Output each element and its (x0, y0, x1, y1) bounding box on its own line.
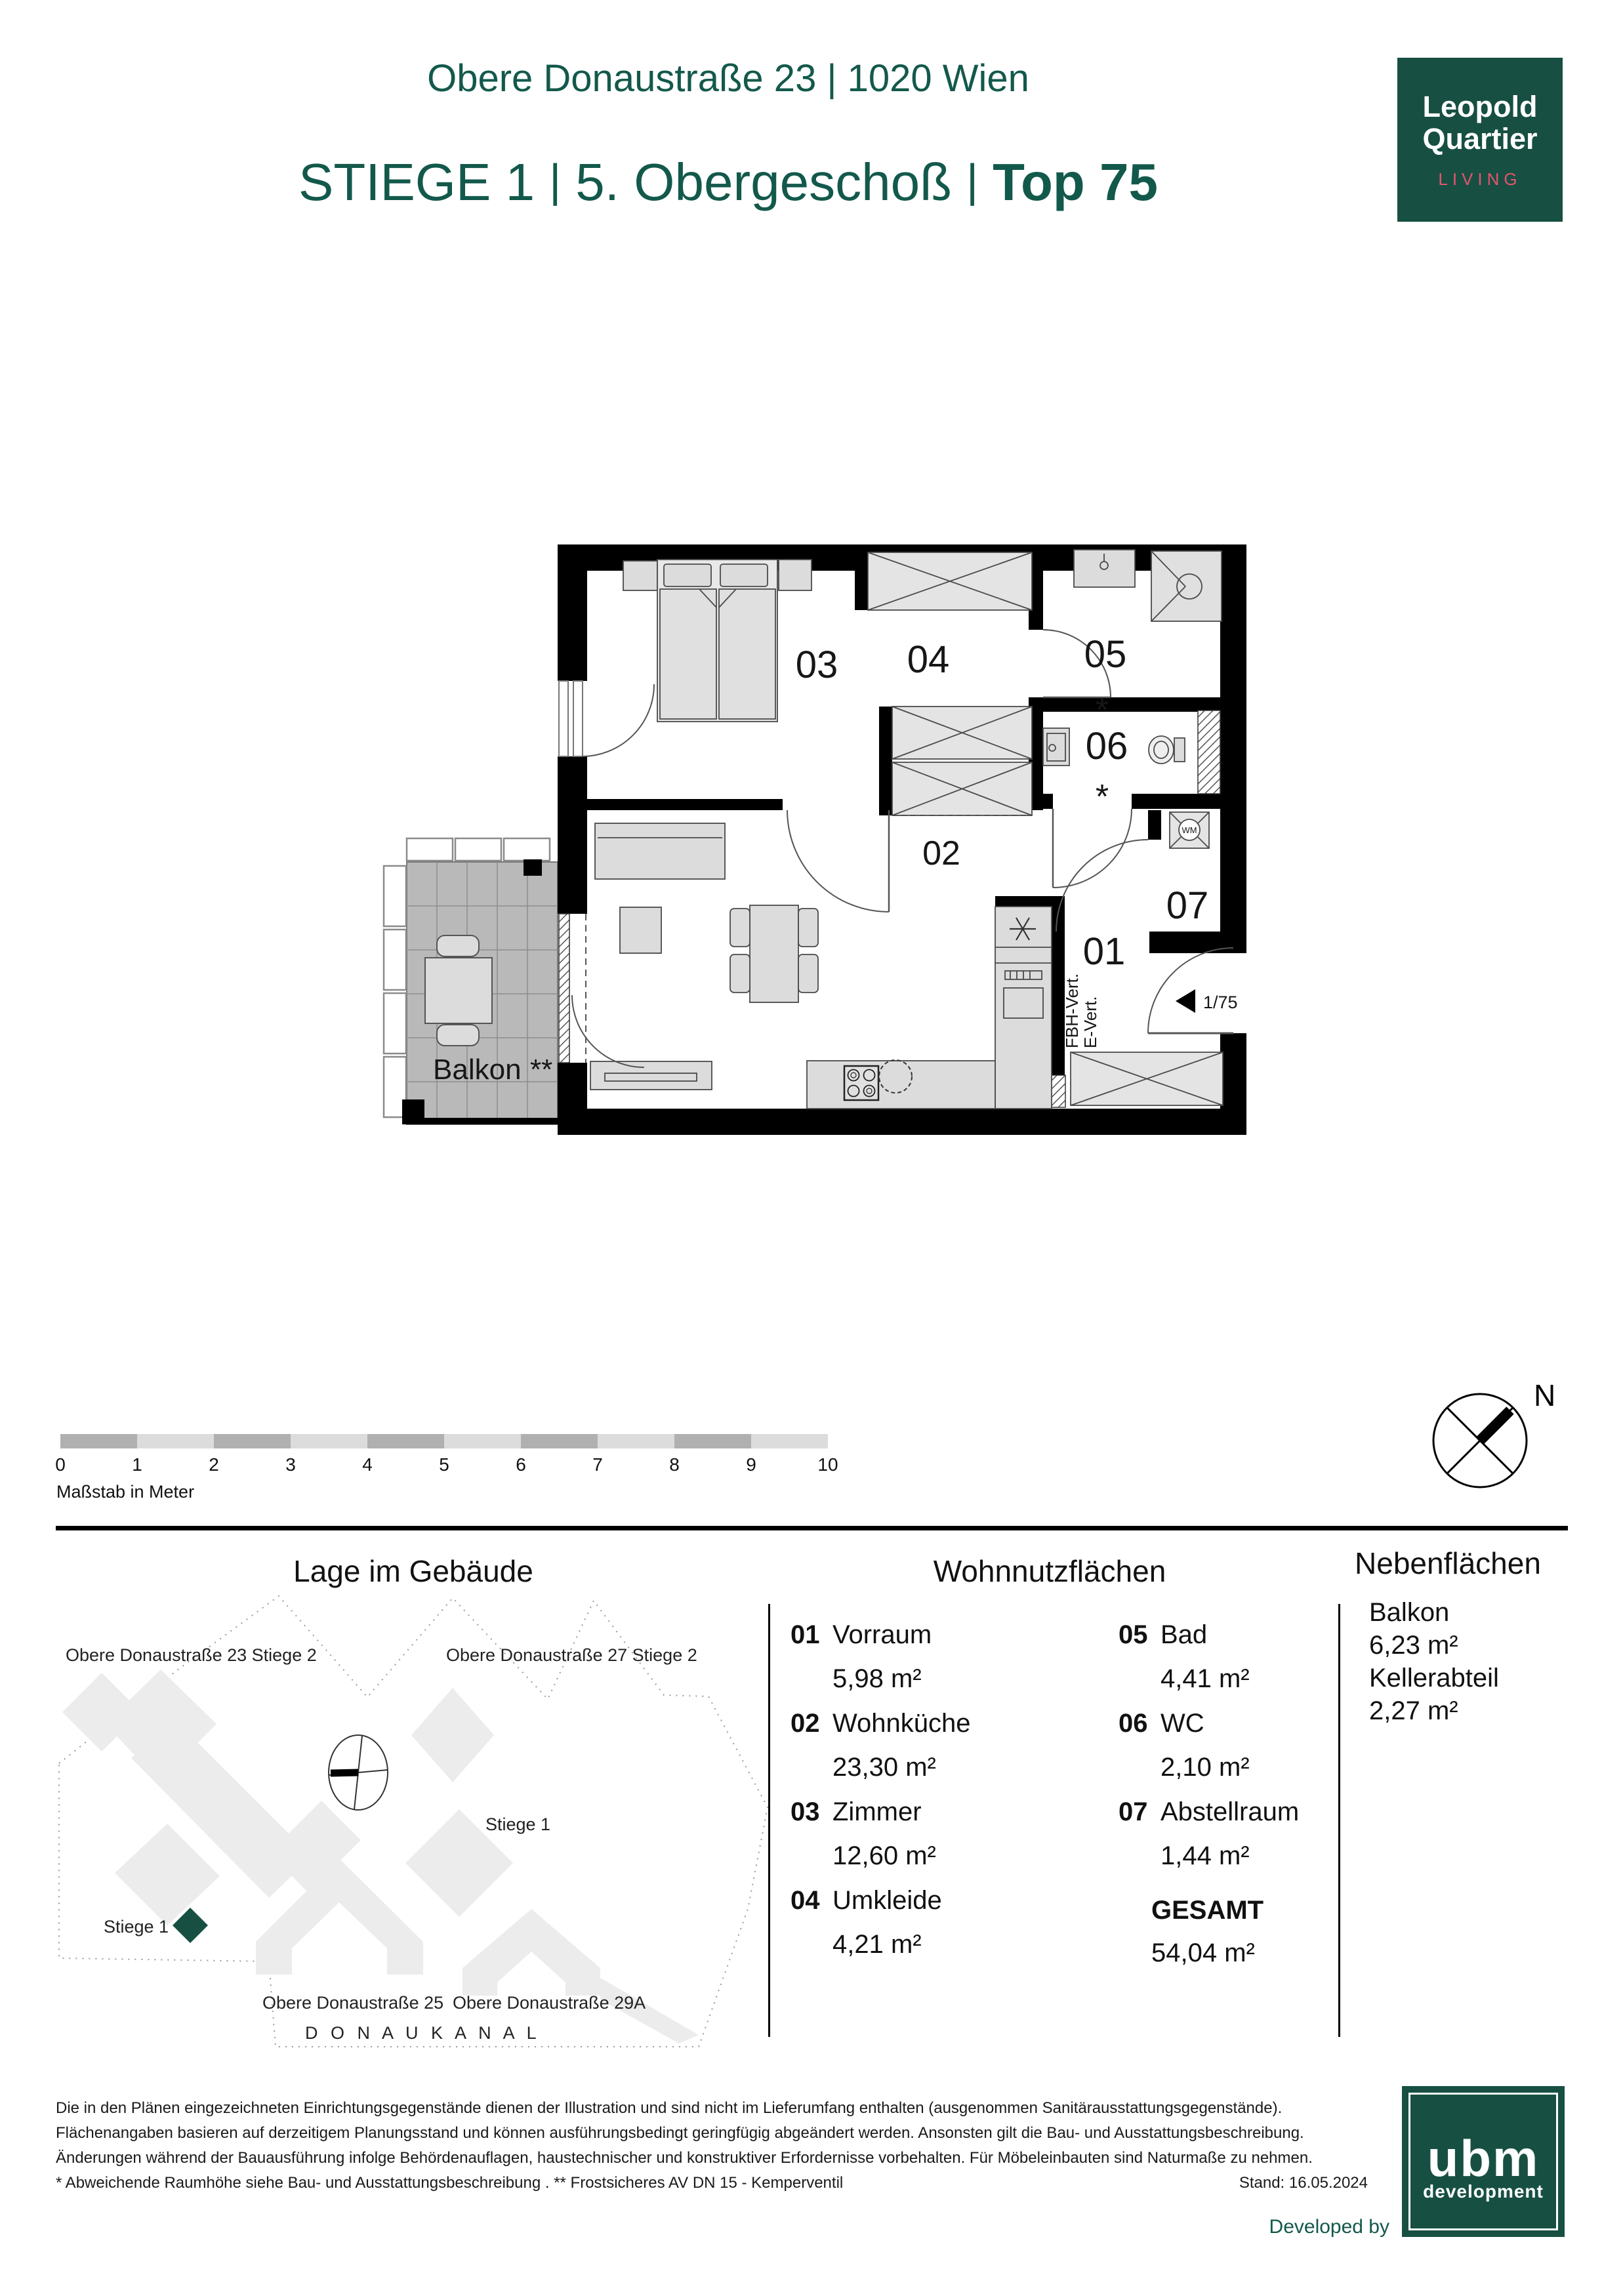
toilet-tank (1174, 738, 1185, 762)
balcony-table (425, 958, 492, 1023)
north-needle (1480, 1410, 1510, 1441)
stove (844, 1066, 878, 1100)
svg-text:0: 0 (55, 1454, 66, 1475)
area-value: 12,60 m² (832, 1841, 936, 1871)
entry-door-swing (1148, 948, 1233, 1033)
north-label: N (1534, 1378, 1555, 1412)
plan-date: Stand: 16.05.2024 (1115, 2174, 1368, 2192)
chair (798, 954, 818, 993)
section-divider (56, 1526, 1568, 1530)
total-label: GESAMT (1151, 1896, 1263, 1925)
chair (730, 954, 750, 993)
area-row: 07Abstellraum (1119, 1797, 1299, 1827)
site-label-donaukanal: D O N A U K A N A L (305, 2023, 541, 2043)
svg-text:2: 2 (209, 1454, 219, 1475)
balcony-door-swing (572, 995, 644, 1067)
room-label-04: 04 (907, 638, 950, 681)
wm-label: WM (1181, 825, 1197, 835)
area-value: 2,10 m² (1161, 1753, 1250, 1782)
toilet (1149, 736, 1174, 764)
area-row: 01Vorraum (791, 1620, 932, 1650)
chair (798, 909, 818, 947)
area-value: 5,98 m² (832, 1664, 922, 1694)
area-row: 04Umkleide (791, 1886, 942, 1916)
balcony-chair (437, 935, 479, 956)
floor-label: 5. Obergeschoß (575, 153, 952, 211)
room-label-05: 05 (1084, 633, 1127, 676)
floor-plan: 03 04 05 * 06 * 07 01 02 Balkon ** WM 1/… (367, 512, 1260, 1155)
window-door-swing (582, 684, 654, 756)
nebenflaechen-title: Nebenflächen (1317, 1546, 1579, 1581)
shaft (1198, 710, 1220, 794)
scale-bar: 01 23 45 67 89 10 Maßstab in Meter (52, 1430, 873, 1509)
scale-label: Maßstab in Meter (56, 1482, 194, 1502)
aux-area-value: 6,23 m² (1369, 1631, 1458, 1660)
top-number: Top 75 (993, 153, 1158, 211)
north-compass: N (1410, 1358, 1607, 1528)
site-label-25: Obere Donaustraße 25 (262, 1993, 443, 2013)
logo-line2: Quartier (1397, 123, 1563, 155)
aux-area-value: 2,27 m² (1369, 1696, 1458, 1726)
aux-area-name: Kellerabteil (1369, 1664, 1499, 1693)
scale-segments (60, 1434, 828, 1448)
site-label-27: Obere Donaustraße 27 Stiege 2 (446, 1645, 697, 1665)
svg-text:6: 6 (516, 1454, 526, 1475)
mattress (660, 589, 716, 719)
nightstand (779, 560, 811, 590)
ubm-logo: ubm development (1402, 2086, 1565, 2237)
separator: | (535, 155, 575, 206)
logo-line3: LIVING (1397, 169, 1563, 190)
site-label-stiege1-right: Stiege 1 (485, 1814, 550, 1834)
room-06-star: * (1096, 778, 1109, 816)
door-swing (787, 810, 889, 912)
site-plan-title: Lage im Gebäude (216, 1553, 610, 1589)
svg-text:10: 10 (817, 1454, 838, 1475)
wc-door-swing (1053, 809, 1132, 888)
svg-text:8: 8 (669, 1454, 680, 1475)
bedroom-window (559, 681, 583, 756)
ubm-logo-sub: development (1410, 2181, 1556, 2202)
room-label-03: 03 (796, 644, 838, 686)
pillow (664, 564, 711, 586)
entry-door-label: 1/75 (1203, 993, 1238, 1012)
aux-area-name: Balkon (1369, 1598, 1449, 1628)
sideboard (590, 1061, 712, 1090)
balkon-note: ** (530, 1054, 552, 1086)
mattress (719, 589, 775, 719)
area-row: 05Bad (1119, 1620, 1207, 1650)
site-label-29a: Obere Donaustraße 29A (453, 1993, 646, 2013)
column-divider (1338, 1604, 1340, 2037)
leopold-quartier-logo: Leopold Quartier LIVING (1397, 58, 1563, 222)
dining-table (750, 905, 798, 1002)
scale-ticks: 01 23 45 67 89 10 (55, 1454, 838, 1475)
svg-text:4: 4 (362, 1454, 373, 1475)
area-value: 23,30 m² (832, 1753, 936, 1782)
ubm-logo-frame: ubm development (1408, 2093, 1558, 2230)
disclaimer-line: Änderungen während der Bauausführung inf… (56, 2149, 1361, 2167)
site-plan: Obere Donaustraße 23 Stiege 2 Obere Dona… (52, 1594, 774, 2053)
stiege-label: STIEGE 1 (298, 153, 535, 211)
area-value: 4,21 m² (832, 1930, 922, 1959)
balkon-label: Balkon (433, 1054, 522, 1086)
site-compass (329, 1735, 388, 1810)
disclaimer-line: Die in den Plänen eingezeichneten Einric… (56, 2099, 1361, 2118)
total-value: 54,04 m² (1151, 1938, 1255, 1968)
area-row: 06WC (1119, 1709, 1204, 1738)
svg-text:5: 5 (439, 1454, 449, 1475)
svg-text:1: 1 (132, 1454, 142, 1475)
kitchen-counter (807, 1061, 995, 1109)
sofa (595, 823, 725, 879)
site-label-stiege1-left: Stiege 1 (104, 1917, 169, 1937)
room-05-star: * (1096, 691, 1109, 729)
room-label-02: 02 (922, 834, 960, 872)
fbh-label: FBH-Vert. (1062, 974, 1082, 1048)
nightstand (623, 561, 657, 590)
room-label-07: 07 (1166, 884, 1209, 927)
entry-arrow-icon (1176, 989, 1195, 1013)
address-line: Obere Donaustraße 23 | 1020 Wien (230, 56, 1227, 100)
evert-label: E-Vert. (1080, 996, 1100, 1048)
balcony-chair (437, 1025, 479, 1046)
svg-text:9: 9 (746, 1454, 756, 1475)
balcony-sliding-door (559, 914, 569, 1063)
room-label-06: 06 (1086, 725, 1128, 768)
svg-text:7: 7 (592, 1454, 603, 1475)
svg-text:3: 3 (285, 1454, 296, 1475)
unit-title: STIEGE 1|5. Obergeschoß|Top 75 (98, 152, 1358, 213)
chair (730, 909, 750, 947)
area-value: 4,41 m² (1161, 1664, 1250, 1694)
pillow (720, 564, 768, 586)
wohnnutzflaechen-title: Wohnnutzflächen (853, 1553, 1246, 1589)
building-footprints (62, 1670, 699, 2043)
area-row: 03Zimmer (791, 1797, 922, 1827)
logo-line1: Leopold (1397, 91, 1563, 123)
area-row: 02Wohnküche (791, 1709, 971, 1738)
area-value: 1,44 m² (1161, 1841, 1250, 1871)
ubm-logo-name: ubm (1410, 2135, 1556, 2181)
disclaimer-line: Flächenangaben basieren auf derzeitigem … (56, 2124, 1361, 2142)
floorplan-document-page: Obere Donaustraße 23 | 1020 Wien STIEGE … (0, 0, 1623, 2296)
developed-by-label: Developed by (1220, 2216, 1389, 2238)
site-label-23: Obere Donaustraße 23 Stiege 2 (66, 1645, 317, 1665)
room-label-01: 01 (1083, 930, 1126, 973)
coffee-table (620, 907, 661, 953)
separator: | (952, 155, 993, 206)
